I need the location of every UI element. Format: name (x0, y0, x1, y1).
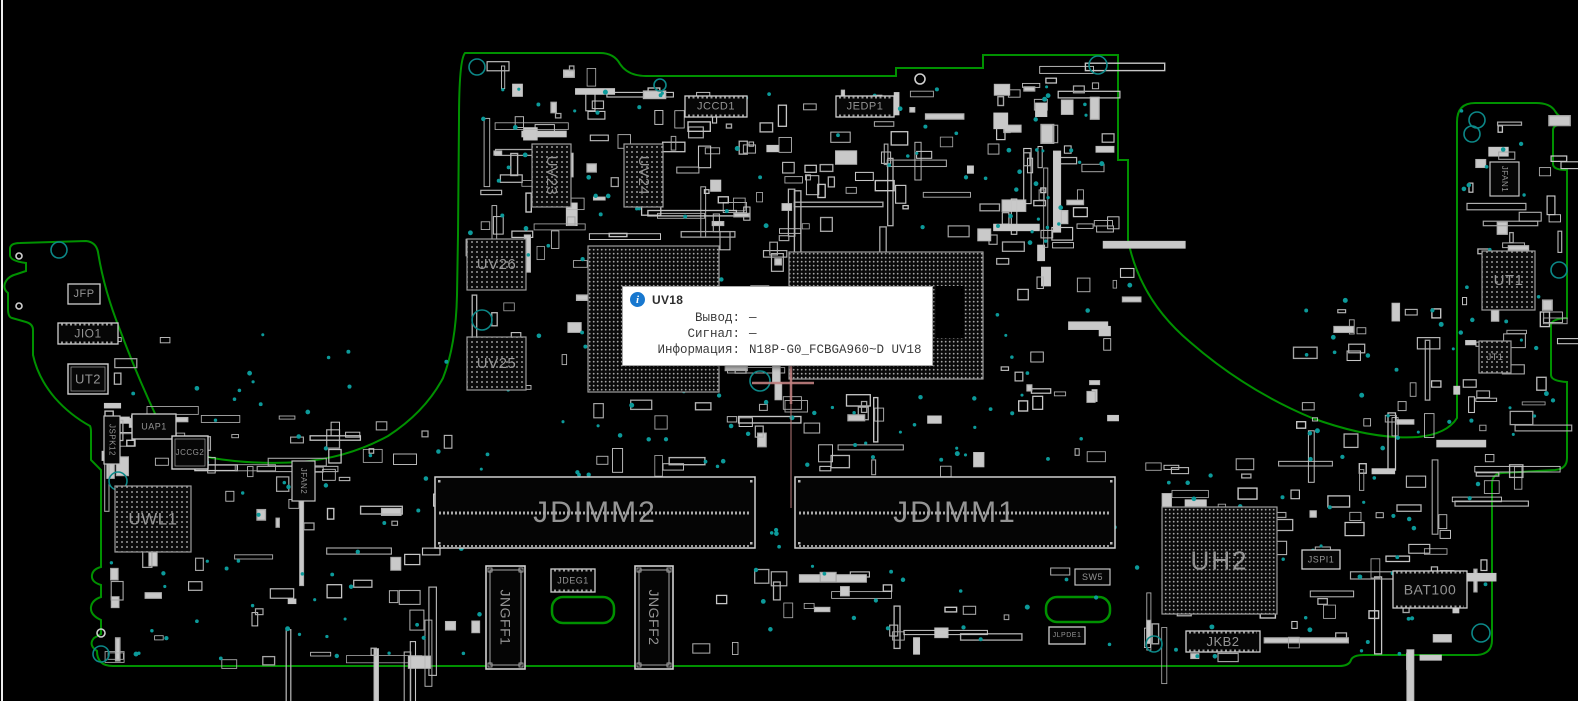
small-components-layer (102, 62, 1578, 701)
mounting-hole (915, 74, 925, 84)
component-label: JNGFF2 (646, 590, 662, 646)
component-label: JEDP1 (847, 101, 884, 113)
component-ut2[interactable]: UT2 (68, 364, 108, 394)
component-uv23[interactable]: UV23 (532, 144, 571, 207)
component-uv26[interactable]: UV26 (467, 239, 526, 290)
tooltip-row-value: — (749, 310, 757, 326)
component-label: JCCD1 (697, 101, 735, 113)
component-jio1[interactable]: JIO1 (58, 323, 118, 344)
tooltip-row: Информация:N18P-G0_FCBGA960~D UV18 (630, 342, 924, 358)
component-jfan2[interactable]: JFAN2 (292, 461, 315, 501)
tooltip-row: Сигнал:— (630, 326, 924, 342)
component-jkb2[interactable]: JKB2 (1186, 631, 1260, 652)
mounting-hole (1464, 126, 1480, 142)
mounting-hole (16, 303, 22, 309)
window-edge-divider (1, 0, 3, 701)
component-label: JFAN2 (299, 468, 308, 495)
component-label: JKB2 (1206, 634, 1239, 649)
mounting-hole (472, 310, 492, 330)
component-jccg2[interactable]: JCCG2 (172, 436, 208, 469)
component-label: JLPDE1 (1053, 632, 1082, 639)
component-label: UV24 (635, 156, 652, 196)
component-label: UV25 (477, 355, 517, 372)
component-label: UT1 (1494, 272, 1524, 289)
tooltip-header: i UV18 (630, 291, 924, 308)
component-jspk12[interactable]: JSPK12 (104, 416, 120, 464)
tooltip-rows: Вывод:—Сигнал:—Информация:N18P-G0_FCBGA9… (630, 310, 924, 358)
tooltip-row-value: — (749, 326, 757, 342)
tooltip-row-label: Вывод: (630, 310, 740, 326)
component-uh2[interactable]: UH2 (1162, 507, 1277, 614)
mounting-hole (1472, 624, 1490, 642)
component-jfan1[interactable]: JFAN1 (1490, 162, 1519, 196)
tooltip-row: Вывод:— (630, 310, 924, 326)
component-label: JT1 (1487, 352, 1504, 362)
component-jt1[interactable]: JT1 (1479, 341, 1511, 373)
component-jdimm2[interactable]: JDIMM2 (435, 477, 755, 548)
component-label: SW5 (1082, 572, 1103, 582)
component-jngff1[interactable]: JNGFF1 (486, 566, 525, 669)
component-info-tooltip: i UV18 Вывод:—Сигнал:—Информация:N18P-G0… (622, 286, 933, 366)
component-label: UV23 (543, 156, 560, 196)
component-jdeg1[interactable]: JDEG1 (551, 569, 595, 592)
component-label: JFAN1 (1500, 166, 1509, 193)
mounting-hole (1551, 262, 1567, 278)
component-bat100[interactable]: BAT100 (1393, 571, 1467, 608)
component-jccd1[interactable]: JCCD1 (685, 96, 747, 117)
component-jlpde1[interactable]: JLPDE1 (1049, 627, 1085, 644)
component-jedp1[interactable]: JEDP1 (836, 96, 894, 117)
component-uv25[interactable]: UV25 (467, 337, 526, 390)
mounting-hole (51, 242, 67, 258)
info-icon: i (630, 292, 645, 307)
component-label: UH2 (1190, 546, 1248, 576)
mounting-hole (1089, 56, 1107, 74)
mounting-hole (469, 59, 485, 75)
component-jdimm1[interactable]: JDIMM1 (795, 477, 1115, 548)
tooltip-row-label: Сигнал: (630, 326, 740, 342)
component-jspi1[interactable]: JSPI1 (1302, 550, 1340, 569)
tooltip-title: UV18 (652, 293, 683, 307)
component-jngff2[interactable]: JNGFF2 (635, 566, 673, 669)
component-label: BAT100 (1404, 582, 1457, 598)
component-label: JSPI1 (1308, 555, 1335, 565)
boardview-window: JFPJIO1UT2JSPK12UAP1JCCG2UWL1JFAN2UV26UV… (0, 0, 1578, 701)
component-label: JFP (73, 288, 94, 300)
component-label: UT2 (75, 372, 101, 387)
mounting-hole (750, 371, 770, 391)
component-sw5[interactable]: SW5 (1075, 569, 1110, 585)
mounting-hole (93, 646, 109, 662)
component-label: UAP1 (141, 422, 167, 432)
tooltip-row-label: Информация: (630, 342, 740, 358)
component-label: JNGFF1 (498, 590, 514, 646)
component-jfp[interactable]: JFP (68, 284, 100, 304)
component-label: JIO1 (74, 327, 101, 341)
component-uap1[interactable]: UAP1 (132, 414, 176, 439)
component-uv24[interactable]: UV24 (624, 144, 663, 207)
component-label: JCCG2 (176, 448, 205, 457)
tooltip-row-value: N18P-G0_FCBGA960~D UV18 (749, 342, 922, 358)
board-slot-cutout (1046, 597, 1110, 622)
component-label: JDEG1 (557, 576, 589, 586)
board-slot-cutout (552, 597, 614, 623)
component-label: UV26 (477, 256, 517, 273)
component-uwl1[interactable]: UWL1 (115, 486, 191, 552)
component-ut1[interactable]: UT1 (1482, 251, 1535, 310)
component-label: JSPK12 (108, 424, 117, 456)
mounting-hole (16, 253, 22, 259)
component-label: UWL1 (128, 510, 177, 529)
